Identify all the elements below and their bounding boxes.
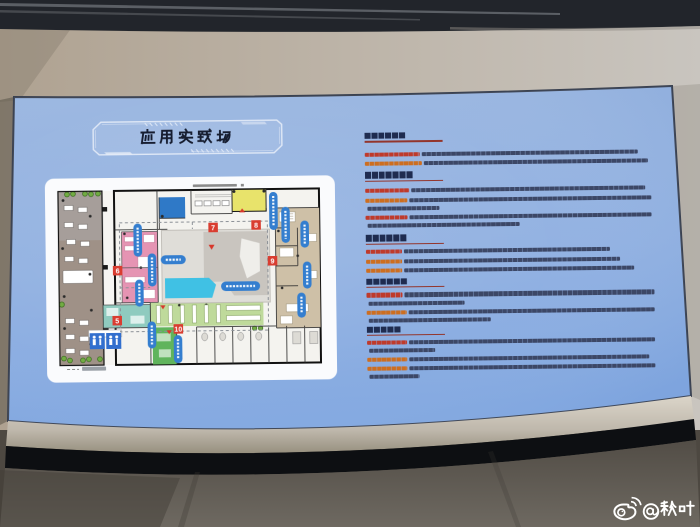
svg-text:8: 8 [254, 223, 258, 230]
svg-text:5: 5 [115, 318, 119, 325]
svg-text:9: 9 [270, 258, 274, 265]
svg-text:10: 10 [174, 327, 182, 334]
svg-text:6: 6 [116, 268, 120, 275]
svg-text:7: 7 [211, 225, 215, 232]
